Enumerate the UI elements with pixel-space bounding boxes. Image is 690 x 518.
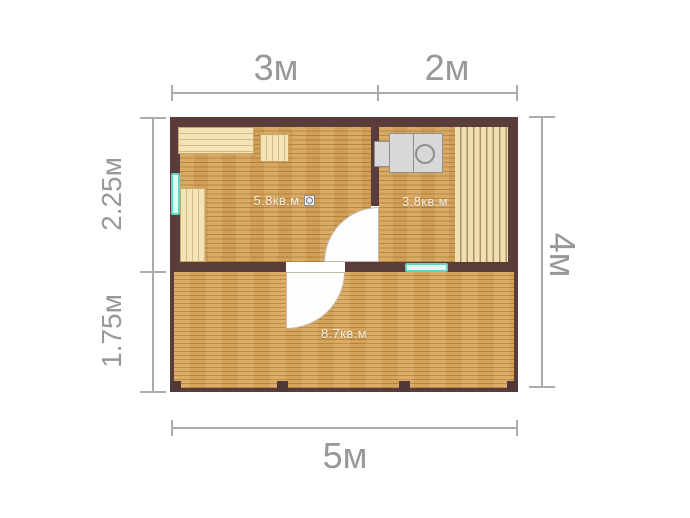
dim-tick (171, 420, 173, 436)
dim-line-left (152, 118, 154, 392)
dim-line-bottom (172, 427, 517, 429)
room1-label-row: 5.8кв.м (224, 193, 344, 208)
dim-tick (140, 391, 166, 393)
dim-label-3m: 3м (224, 50, 328, 86)
stove-firebox-tunnel (374, 141, 390, 167)
dim-tick (377, 85, 379, 101)
door2-opening (286, 262, 345, 272)
dim-label-4m: 4м (540, 210, 580, 300)
dim-tick (140, 271, 166, 273)
dim-label-1-75m: 1.75м (98, 266, 132, 396)
dim-label-2m: 2м (395, 50, 499, 86)
dim-tick (529, 386, 555, 388)
terrace-post (399, 381, 410, 392)
dim-line-top (172, 92, 517, 94)
terrace-area-label: 8.7кв.м (294, 326, 394, 341)
window-left (171, 173, 180, 215)
dim-tick (171, 85, 173, 101)
dim-label-2-25m: 2.25м (98, 129, 132, 259)
terrace-post (170, 381, 181, 392)
bench-stool (260, 134, 289, 162)
dim-tick (529, 116, 555, 118)
dim-label-5m: 5м (293, 438, 397, 474)
room1-area-label: 5.8кв.м (253, 193, 299, 208)
terrace-post (277, 381, 288, 392)
dim-tick (140, 117, 166, 119)
bench-left (180, 188, 206, 262)
vent-icon (304, 195, 315, 206)
dim-tick (516, 420, 518, 436)
terrace-post (507, 381, 518, 392)
stove-tank-icon (415, 144, 435, 164)
room2-area-label: 3.8кв.м (375, 194, 475, 209)
stove (389, 133, 443, 173)
window-mid (405, 263, 448, 272)
dim-tick (516, 85, 518, 101)
floor-plan: 5.8кв.м 3.8кв.м 8.7кв.м 3м 2м 2.25м 1.75… (0, 0, 690, 518)
stove-divider (413, 134, 414, 172)
bench-top (178, 127, 254, 154)
